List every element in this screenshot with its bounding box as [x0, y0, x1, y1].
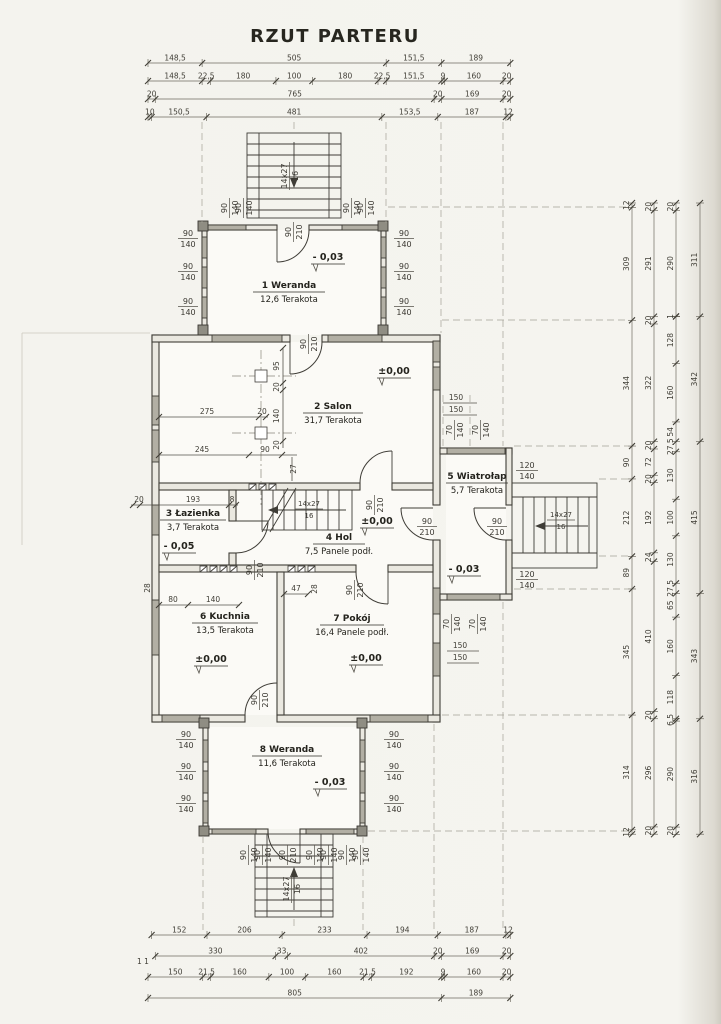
dim-label: 345 — [622, 645, 631, 660]
svg-text:16: 16 — [291, 171, 300, 181]
dim-label: 187 — [465, 108, 480, 117]
dim-label: 9 — [441, 72, 446, 81]
svg-text:90: 90 — [345, 585, 354, 595]
window-label: 90140 — [178, 262, 198, 282]
window-label: 90140 — [176, 762, 196, 782]
exterior-stairs-bottom — [255, 834, 333, 917]
dim-label: 180 — [338, 72, 353, 81]
window-label: 90140 — [384, 730, 404, 750]
dim-label: 10 — [145, 108, 155, 117]
dim-label: 505 — [287, 54, 302, 63]
floor-plan-sheet: RZUT PARTERU — [0, 0, 721, 1024]
stairs-label-right: 14x2716 — [547, 511, 575, 531]
svg-text:70: 70 — [442, 619, 451, 629]
window-label: 90140 — [394, 297, 414, 317]
svg-text:90: 90 — [183, 262, 193, 271]
dim-label: 12 — [622, 827, 631, 837]
svg-text:140: 140 — [396, 273, 411, 282]
dim-label: 90 — [622, 458, 631, 468]
svg-text:16,4 Panele podł.: 16,4 Panele podł. — [315, 628, 389, 638]
svg-text:14x27: 14x27 — [550, 511, 572, 519]
svg-text:- 0,03: - 0,03 — [313, 252, 344, 263]
dim-label: 192 — [644, 510, 653, 525]
svg-text:140: 140 — [519, 581, 534, 590]
dim-label: 140 — [206, 595, 221, 604]
svg-text:210: 210 — [289, 847, 298, 862]
dim-label: 187 — [465, 926, 480, 935]
dim-label: 311 — [690, 252, 699, 267]
floor-plan-drawing: 95 20 140 20 275 20 245 90 27 20 193 8 2… — [0, 0, 721, 1024]
window-label: 70140 — [471, 420, 491, 440]
svg-text:90: 90 — [299, 339, 308, 349]
svg-text:140: 140 — [386, 805, 401, 814]
dim-chain-top-3: 207652016920 — [145, 90, 513, 104]
dim-label: 150,5 — [168, 108, 190, 117]
dim-label: 343 — [690, 649, 699, 664]
window-label: 120140 — [516, 570, 538, 590]
svg-text:14x27: 14x27 — [282, 876, 291, 901]
dim-label: 1 — [666, 314, 675, 319]
dim-label: 189 — [469, 54, 484, 63]
svg-text:90: 90 — [422, 517, 432, 526]
dim-label: 20 — [644, 474, 653, 484]
dim-label: 290 — [666, 767, 675, 782]
svg-text:±0,00: ±0,00 — [378, 366, 410, 377]
svg-text:14x27: 14x27 — [280, 163, 289, 188]
svg-text:210: 210 — [356, 582, 365, 597]
svg-text:31,7 Terakota: 31,7 Terakota — [304, 416, 362, 426]
dim-label: 192 — [399, 968, 414, 977]
svg-text:140: 140 — [482, 422, 491, 437]
door-label: 90210 — [278, 845, 298, 865]
dim-label: 72 — [644, 457, 653, 467]
dim-label: 245 — [195, 445, 210, 454]
dim-label: 410 — [644, 629, 653, 644]
dim-label: 65 — [666, 600, 675, 610]
dim-label: 233 — [317, 926, 332, 935]
dim-label: 296 — [644, 765, 653, 780]
dim-label: 150 — [168, 968, 183, 977]
dim-label: 150 — [453, 653, 468, 662]
svg-text:±0,00: ±0,00 — [350, 653, 382, 664]
dim-label: 140 — [272, 409, 281, 424]
dim-label: 20 — [502, 947, 512, 956]
dim-label: 765 — [288, 90, 303, 99]
svg-text:14x27: 14x27 — [298, 500, 320, 508]
dim-label: 20 — [134, 495, 144, 504]
dim-label: 22,5 — [374, 72, 391, 81]
dim-label: 54 — [666, 427, 675, 437]
svg-text:140: 140 — [362, 847, 371, 862]
svg-text:120: 120 — [519, 461, 534, 470]
dim-label: 90 — [260, 445, 270, 454]
dim-label: 180 — [236, 72, 251, 81]
svg-text:- 0,03: - 0,03 — [449, 564, 480, 575]
dim-label: 12 — [622, 200, 631, 210]
svg-text:90: 90 — [492, 517, 502, 526]
window-label: 70140 — [442, 614, 462, 634]
exterior-stairs-right — [512, 483, 597, 568]
svg-text:90: 90 — [305, 850, 314, 860]
svg-text:90: 90 — [181, 794, 191, 803]
svg-text:210: 210 — [261, 692, 270, 707]
svg-text:90: 90 — [389, 730, 399, 739]
window-label: 70140 — [468, 614, 488, 634]
dim-label: 160 — [666, 639, 675, 654]
dim-label: 8 — [230, 495, 235, 504]
dim-label: 27,5 — [666, 580, 675, 597]
dim-label: 20 — [147, 90, 157, 99]
dim-chain-top-4: 10150,5481153,518712 — [145, 108, 513, 122]
svg-text:90: 90 — [389, 794, 399, 803]
dim-chain-right-2: 2029120322207220192244102029620 — [644, 200, 658, 837]
dim-label: 24 — [644, 552, 653, 562]
dim-label: 322 — [644, 375, 653, 390]
dim-label: 12 — [503, 926, 513, 935]
dim-label: 12 — [503, 108, 513, 117]
svg-text:140: 140 — [178, 805, 193, 814]
window-label: 90140 — [394, 229, 414, 249]
svg-text:210: 210 — [489, 528, 504, 537]
svg-text:70: 70 — [471, 425, 480, 435]
dim-label: 148,5 — [164, 72, 186, 81]
dim-label: 291 — [644, 256, 653, 271]
dim-label: 415 — [690, 510, 699, 525]
dim-label: 100 — [280, 968, 295, 977]
dim-label: 152 — [172, 926, 187, 935]
dim-label: 316 — [690, 769, 699, 784]
svg-text:90: 90 — [399, 262, 409, 271]
svg-text:90: 90 — [253, 850, 262, 860]
svg-text:140: 140 — [264, 847, 273, 862]
svg-text:16: 16 — [293, 884, 302, 894]
dim-label: 20 — [666, 826, 675, 836]
dim-label: 151,5 — [403, 54, 425, 63]
column — [255, 370, 267, 382]
svg-text:140: 140 — [453, 616, 462, 631]
dim-label: 6,5 — [666, 714, 675, 726]
dim-label: 20 — [644, 710, 653, 720]
dim-label: 169 — [465, 90, 480, 99]
svg-text:210: 210 — [419, 528, 434, 537]
svg-text:12,6 Terakota: 12,6 Terakota — [260, 295, 318, 305]
dim-label: 342 — [690, 372, 699, 387]
dim-label: 100 — [666, 510, 675, 525]
dim-chain-bottom-2: 330334022016920 — [152, 947, 513, 961]
dim-label: 20 — [644, 826, 653, 836]
svg-text:210: 210 — [376, 497, 385, 512]
svg-text:16: 16 — [305, 512, 314, 520]
dim-label: 290 — [666, 256, 675, 271]
svg-text:140: 140 — [386, 773, 401, 782]
dim-label: 206 — [237, 926, 252, 935]
dim-label: 27 — [289, 464, 298, 474]
svg-text:90: 90 — [183, 297, 193, 306]
svg-text:13,5 Terakota: 13,5 Terakota — [196, 626, 254, 636]
dim-label: 20 — [502, 72, 512, 81]
window-label: 90140 — [178, 297, 198, 317]
dim-chain-bottom-3: 15021,516010016021,5192916020 — [145, 968, 513, 982]
svg-text:90: 90 — [356, 203, 365, 213]
dim-label: 20 — [433, 947, 443, 956]
svg-text:7 Pokój: 7 Pokój — [333, 613, 370, 624]
svg-text:16: 16 — [557, 523, 566, 531]
window-label: 90140 — [178, 229, 198, 249]
svg-text:90: 90 — [351, 850, 360, 860]
svg-text:70: 70 — [468, 619, 477, 629]
dim-label: 20 — [257, 407, 267, 416]
dim-label: 20 — [644, 315, 653, 325]
svg-text:70: 70 — [445, 425, 454, 435]
dim-label: 194 — [395, 926, 410, 935]
svg-text:90: 90 — [245, 565, 254, 575]
svg-text:5,7 Terakota: 5,7 Terakota — [451, 486, 503, 496]
dim-label: 148,5 — [164, 54, 186, 63]
dim-chain-right-3: 2029011281605427,513010013027,5651601186… — [666, 200, 680, 837]
svg-text:210: 210 — [295, 224, 304, 239]
svg-text:90: 90 — [399, 297, 409, 306]
dim-label: 160 — [327, 968, 342, 977]
dim-label: 402 — [354, 947, 369, 956]
dim-label: 20 — [502, 968, 512, 977]
svg-text:140: 140 — [178, 741, 193, 750]
svg-text:140: 140 — [245, 200, 254, 215]
dim-label: 20 — [433, 90, 443, 99]
section-mark: 1 1 — [137, 957, 149, 966]
dim-label: 28 — [143, 583, 152, 593]
dim-label: 28 — [310, 584, 319, 594]
svg-text:90: 90 — [399, 229, 409, 238]
svg-text:140: 140 — [456, 422, 465, 437]
dim-label: 47 — [291, 584, 301, 593]
svg-text:90: 90 — [250, 695, 259, 705]
window-label: 70140 — [445, 420, 465, 440]
svg-text:6 Kuchnia: 6 Kuchnia — [200, 612, 250, 622]
svg-text:90: 90 — [284, 227, 293, 237]
svg-text:140: 140 — [396, 240, 411, 249]
dim-label: 27,5 — [666, 438, 675, 455]
svg-text:90: 90 — [234, 203, 243, 213]
column — [255, 427, 267, 439]
dim-label: 80 — [168, 595, 178, 604]
svg-text:- 0,03: - 0,03 — [315, 777, 346, 788]
faint-guide-lines — [22, 333, 150, 545]
dim-label: 100 — [287, 72, 302, 81]
dim-label: 20 — [666, 202, 675, 212]
dim-label: 805 — [288, 989, 303, 998]
svg-text:90: 90 — [389, 762, 399, 771]
svg-text:140: 140 — [479, 616, 488, 631]
svg-text:140: 140 — [386, 741, 401, 750]
glass-block-row-pokoj — [288, 566, 315, 572]
dim-label: 20 — [272, 382, 281, 392]
dim-label: 128 — [666, 333, 675, 348]
dim-label: 9 — [441, 968, 446, 977]
dim-label: 193 — [186, 495, 201, 504]
dim-chain-right-4: 311342415343316 — [690, 200, 704, 837]
svg-text:90: 90 — [278, 850, 287, 860]
dim-label: 160 — [233, 968, 248, 977]
dim-label: 153,5 — [399, 108, 421, 117]
dim-label: 20 — [502, 90, 512, 99]
dim-chain-top-2: 148,522,518010018022,5151,5916020 — [145, 72, 513, 86]
svg-text:5 Wiatrołap: 5 Wiatrołap — [447, 472, 507, 482]
window-label: 90140 — [394, 262, 414, 282]
dim-label: 160 — [467, 72, 482, 81]
svg-text:210: 210 — [310, 336, 319, 351]
dim-chain-top-1: 148,5505151,5189 — [145, 54, 513, 68]
dim-label: 189 — [469, 989, 484, 998]
dim-label: 130 — [666, 552, 675, 567]
svg-text:90: 90 — [239, 850, 248, 860]
dim-label: 275 — [200, 407, 215, 416]
dim-label: 130 — [666, 468, 675, 483]
dim-label: 151,5 — [403, 72, 425, 81]
window-label: 120140 — [516, 461, 538, 481]
svg-text:140: 140 — [180, 308, 195, 317]
svg-text:90: 90 — [181, 730, 191, 739]
svg-text:1 Weranda: 1 Weranda — [262, 281, 317, 291]
dim-label: 118 — [666, 690, 675, 705]
svg-text:4 Hol: 4 Hol — [326, 533, 352, 543]
dim-label: 150 — [449, 393, 464, 402]
dim-label: 20 — [644, 202, 653, 212]
svg-text:140: 140 — [367, 200, 376, 215]
svg-text:- 0,05: - 0,05 — [164, 541, 195, 552]
svg-text:140: 140 — [178, 773, 193, 782]
dim-label: 169 — [465, 947, 480, 956]
svg-text:8 Weranda: 8 Weranda — [260, 745, 315, 755]
svg-text:90: 90 — [365, 500, 374, 510]
dim-label: 20 — [644, 440, 653, 450]
dim-label: 150 — [449, 405, 464, 414]
svg-text:140: 140 — [396, 308, 411, 317]
svg-text:140: 140 — [519, 472, 534, 481]
svg-text:3,7 Terakota: 3,7 Terakota — [167, 523, 219, 533]
window-label: 90140 — [384, 762, 404, 782]
svg-text:90: 90 — [220, 203, 229, 213]
svg-text:±0,00: ±0,00 — [195, 654, 227, 665]
dim-label: 95 — [272, 361, 281, 371]
svg-text:140: 140 — [180, 273, 195, 282]
svg-text:120: 120 — [519, 570, 534, 579]
svg-text:90: 90 — [337, 850, 346, 860]
dim-label: 160 — [666, 385, 675, 400]
svg-text:±0,00: ±0,00 — [361, 516, 393, 527]
svg-text:90: 90 — [183, 229, 193, 238]
dim-label: 21,5 — [359, 968, 376, 977]
svg-text:90: 90 — [181, 762, 191, 771]
glass-block-row-salon — [249, 484, 276, 490]
dim-label: 309 — [622, 256, 631, 271]
dim-label: 481 — [287, 108, 302, 117]
dim-label: 212 — [622, 510, 631, 525]
dim-label: 344 — [622, 376, 631, 391]
dim-label: 21,5 — [198, 968, 215, 977]
dim-label: 33 — [277, 947, 287, 956]
dim-label: 314 — [622, 765, 631, 780]
svg-text:210: 210 — [256, 562, 265, 577]
dim-label: 150 — [453, 641, 468, 650]
dim-chain-right-1: 12309344902128934531412 — [622, 200, 636, 837]
dim-label: 160 — [467, 968, 482, 977]
svg-text:7,5 Panele podł.: 7,5 Panele podł. — [305, 547, 373, 557]
window-label: 90140 — [176, 730, 196, 750]
window-label: 90140 — [176, 794, 196, 814]
dim-label: 89 — [622, 568, 631, 578]
svg-text:2 Salon: 2 Salon — [314, 402, 352, 412]
svg-text:140: 140 — [180, 240, 195, 249]
svg-text:90: 90 — [319, 850, 328, 860]
window-label: 90140 — [384, 794, 404, 814]
svg-text:90: 90 — [342, 203, 351, 213]
dim-label: 330 — [208, 947, 223, 956]
dim-label: 22,5 — [198, 72, 215, 81]
dim-chain-bottom-4: 805189 — [145, 989, 513, 1003]
svg-text:3 Łazienka: 3 Łazienka — [166, 509, 220, 519]
svg-text:11,6 Terakota: 11,6 Terakota — [258, 759, 316, 769]
dim-label: 20 — [272, 440, 281, 450]
